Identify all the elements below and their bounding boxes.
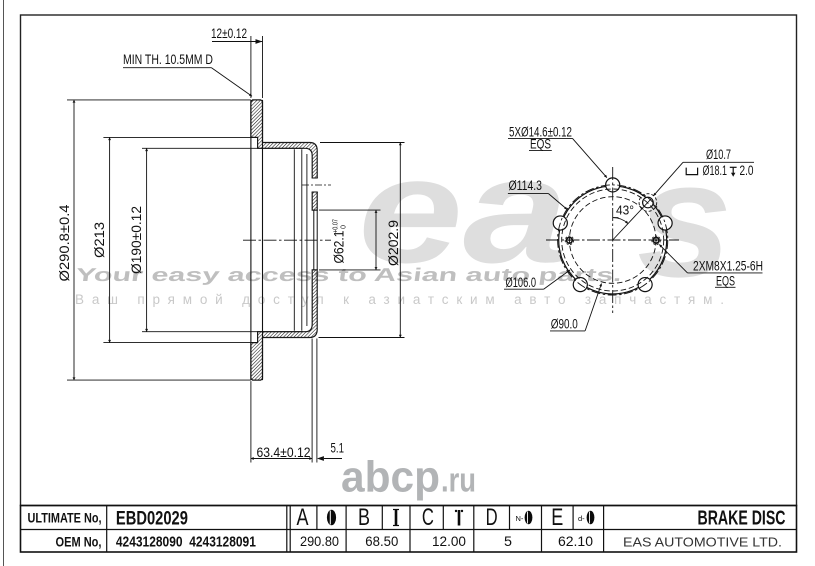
svg-text:Ваш прямой доступ к азиатским: Ваш прямой доступ к азиатским авто запча… xyxy=(75,292,724,307)
svg-text:Ø10.7: Ø10.7 xyxy=(706,147,731,162)
svg-text:D: D xyxy=(486,504,498,531)
svg-text:0: 0 xyxy=(338,225,347,229)
svg-text:Ø62.1: Ø62.1 xyxy=(331,230,347,263)
svg-text:5.1: 5.1 xyxy=(331,440,345,455)
svg-text:Ø213: Ø213 xyxy=(91,222,107,258)
svg-text:A: A xyxy=(297,504,309,531)
svg-text:68.50: 68.50 xyxy=(365,533,398,549)
svg-text:Ø114.3: Ø114.3 xyxy=(509,178,543,193)
svg-text:Ø90.0: Ø90.0 xyxy=(551,317,578,332)
svg-text:12.00: 12.00 xyxy=(432,533,466,549)
svg-text:43°: 43° xyxy=(616,203,634,218)
svg-text:abcp: abcp xyxy=(341,453,440,502)
svg-text:4243128090 4243128091: 4243128090 4243128091 xyxy=(116,534,256,551)
svg-text:ULTIMATE No,: ULTIMATE No, xyxy=(28,511,102,526)
svg-text:12±0.12: 12±0.12 xyxy=(211,26,247,41)
svg-text:EQS: EQS xyxy=(530,137,551,152)
svg-text:d-: d- xyxy=(578,514,585,523)
svg-text:5: 5 xyxy=(504,533,512,549)
svg-text:Ø18.1: Ø18.1 xyxy=(703,163,728,178)
svg-text:Ø290.8±0.4: Ø290.8±0.4 xyxy=(56,204,72,281)
svg-text:2XM8X1.25-6H: 2XM8X1.25-6H xyxy=(693,259,763,274)
svg-text:Ø202.9: Ø202.9 xyxy=(385,220,401,266)
svg-text:.ru: .ru xyxy=(441,462,476,500)
svg-text:C: C xyxy=(422,504,434,531)
svg-text:Ø106.0: Ø106.0 xyxy=(506,275,537,290)
svg-text:EAS AUTOMOTIVE LTD.: EAS AUTOMOTIVE LTD. xyxy=(623,535,782,549)
svg-text:2.0: 2.0 xyxy=(740,163,754,178)
svg-text:MIN TH. 10.5MM D: MIN TH. 10.5MM D xyxy=(123,52,213,67)
svg-text:EBD02029: EBD02029 xyxy=(116,509,188,530)
svg-text:EQS: EQS xyxy=(716,273,735,288)
svg-text:290.80: 290.80 xyxy=(300,533,339,549)
svg-text:N-: N- xyxy=(516,514,524,523)
svg-text:B: B xyxy=(358,504,370,531)
svg-text:E: E xyxy=(551,504,563,531)
svg-text:BRAKE DISC: BRAKE DISC xyxy=(698,507,786,529)
svg-text:62.10: 62.10 xyxy=(558,533,593,549)
svg-text:63.4±0.12: 63.4±0.12 xyxy=(257,445,311,460)
svg-text:Ø190±0.12: Ø190±0.12 xyxy=(128,206,144,274)
svg-text:OEM No,: OEM No, xyxy=(56,535,102,550)
